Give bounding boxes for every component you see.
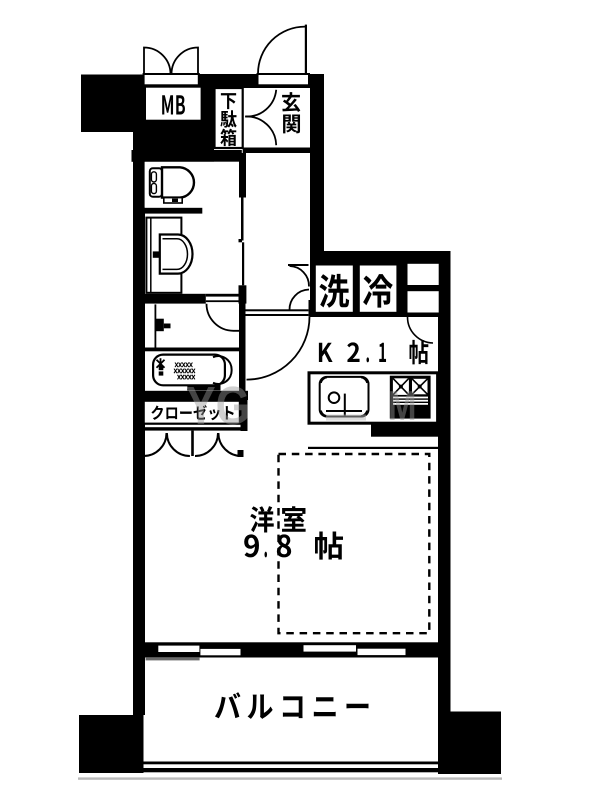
- svg-text:M: M: [388, 383, 417, 430]
- svg-text:YG: YG: [186, 376, 250, 436]
